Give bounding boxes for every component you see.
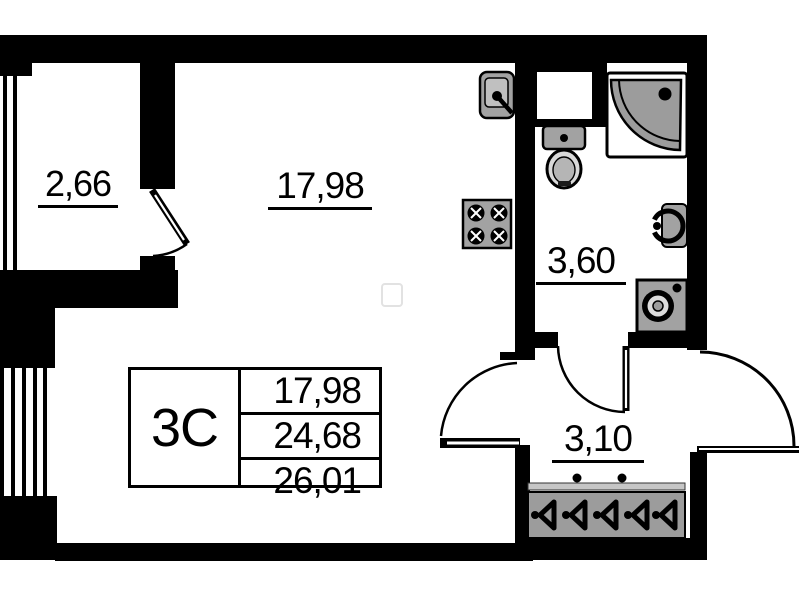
wall-top: [0, 35, 707, 63]
wall-bottom-main: [55, 543, 533, 561]
bathroom-bottom-wall-left: [515, 332, 558, 348]
shower-icon: [607, 73, 687, 157]
door-jamb-foot: [500, 352, 518, 360]
wardrobe-icon: [528, 474, 685, 539]
unit-area-row: 26,01: [241, 457, 379, 502]
wall-bottom-hall: [515, 538, 707, 560]
bathroom-door-arc: [558, 346, 625, 412]
toilet-icon: [543, 126, 585, 188]
balcony-door-arc: [153, 244, 187, 256]
corridor-wall-gap: [699, 448, 799, 450]
living-window: [0, 368, 47, 496]
wall-left-lower: [0, 496, 57, 560]
hallway-area-label: 3,10: [552, 420, 644, 463]
floor-plan: 2,66 17,98 3,60 3,10 3С 17,98 24,68 26,0…: [0, 0, 799, 600]
unit-area-row: 17,98: [241, 370, 379, 412]
wall-under-balcony: [0, 270, 178, 308]
hallway-right-wall: [690, 452, 707, 560]
balcony-window: [3, 75, 17, 270]
wash-basin-icon: [653, 204, 687, 247]
wall-top-left-corner: [0, 63, 32, 76]
kitchen-sink-icon: [480, 72, 514, 118]
unit-type-label: 3С: [131, 370, 241, 485]
wall-right: [687, 63, 707, 350]
unit-info-table: 3С 17,98 24,68 26,01: [128, 367, 382, 488]
living-area-label: 17,98: [268, 167, 372, 210]
balcony-area-label: 2,66: [38, 166, 118, 208]
washing-machine-icon: [637, 280, 687, 332]
bathroom-left-wall: [515, 63, 535, 360]
balcony-partition-wall: [140, 63, 175, 189]
entrance-door-arc: [700, 352, 794, 446]
unit-area-row: 24,68: [241, 412, 379, 457]
cooktop-icon: [463, 200, 511, 248]
balcony-door-leaf-core: [155, 195, 184, 240]
watermark: [381, 283, 403, 307]
wall-left-upper: [0, 305, 55, 368]
unit-areas: 17,98 24,68 26,01: [241, 370, 379, 485]
room-door-arc: [441, 363, 517, 436]
ventilation-shaft-opening: [537, 72, 592, 119]
bathroom-area-label: 3,60: [536, 242, 626, 285]
